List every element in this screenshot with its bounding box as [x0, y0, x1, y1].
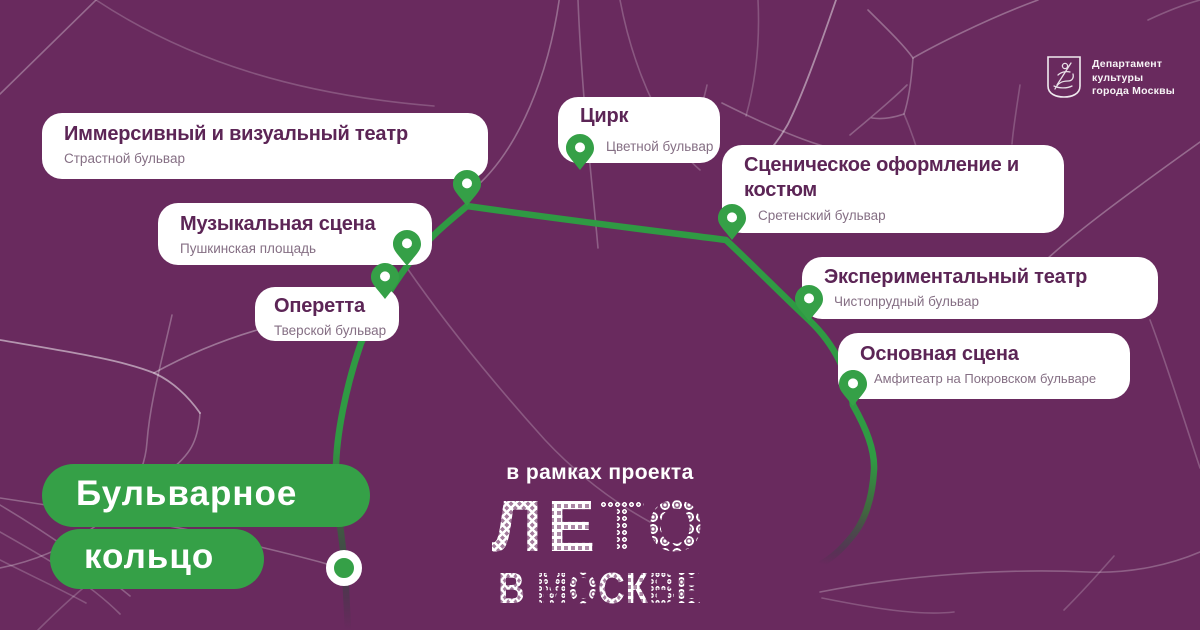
venue-card-immersive: Иммерсивный и визуальный театр Страстной… [42, 113, 488, 179]
venue-title: Цирк [580, 104, 700, 129]
map-pin-operetta [371, 263, 399, 299]
venue-title: Сценическое оформление и костюм [744, 153, 1044, 203]
v-moskve-logo: В МОСКВЕ [472, 567, 727, 611]
ring-label-text: Бульварное [76, 474, 297, 514]
ring-label-text: кольцо [84, 537, 214, 577]
department-logo-text: Департамент культуры города Москвы [1092, 55, 1175, 99]
ring-label-line1: Бульварное [42, 464, 370, 527]
venue-card-scenic: Сценическое оформление и костюм Сретенск… [722, 145, 1064, 233]
route-end-marker [326, 550, 362, 586]
venue-location: Цветной бульвар [580, 138, 700, 155]
map-pin-immersive [453, 170, 481, 206]
map-pin-musical [393, 230, 421, 266]
venue-title: Музыкальная сцена [180, 212, 412, 237]
ring-label-line2: кольцо [50, 529, 264, 589]
venue-card-experimental: Экспериментальный театр Чистопрудный бул… [802, 257, 1158, 319]
venue-card-musical: Музыкальная сцена Пушкинская площадь [158, 203, 432, 265]
department-text-line: Департамент [1092, 58, 1175, 72]
department-logo: Департамент культуры города Москвы [1046, 55, 1175, 99]
department-text-line: культуры [1092, 72, 1175, 86]
route-right-fade [821, 405, 874, 564]
venue-location: Амфитеатр на Покровском бульваре [860, 370, 1110, 387]
boulevard-ring-map-poster: Иммерсивный и визуальный театр Страстной… [0, 0, 1200, 630]
venue-title: Основная сцена [860, 342, 1110, 367]
map-pin-scenic [718, 204, 746, 240]
venue-location: Сретенский бульвар [744, 207, 1044, 224]
venue-title: Оперетта [274, 294, 383, 319]
map-pin-main-stage [839, 370, 867, 406]
venue-location: Тверской бульвар [274, 322, 383, 339]
moscow-coat-of-arms-icon [1046, 55, 1082, 99]
project-logo-block: в рамках проекта ЛЕТО В МОСКВЕ [448, 461, 752, 611]
venue-location: Пушкинская площадь [180, 240, 412, 257]
project-tagline: в рамках проекта [448, 461, 752, 485]
map-pin-experimental [795, 285, 823, 321]
map-pin-circus [566, 134, 594, 170]
venue-card-main-stage: Основная сцена Амфитеатр на Покровском б… [838, 333, 1130, 399]
venue-title: Экспериментальный театр [824, 265, 1138, 290]
leto-logo: ЛЕТО [448, 491, 752, 563]
venue-location: Страстной бульвар [64, 150, 468, 167]
venue-location: Чистопрудный бульвар [824, 293, 1138, 310]
department-text-line: города Москвы [1092, 85, 1175, 99]
venue-title: Иммерсивный и визуальный театр [64, 122, 468, 147]
